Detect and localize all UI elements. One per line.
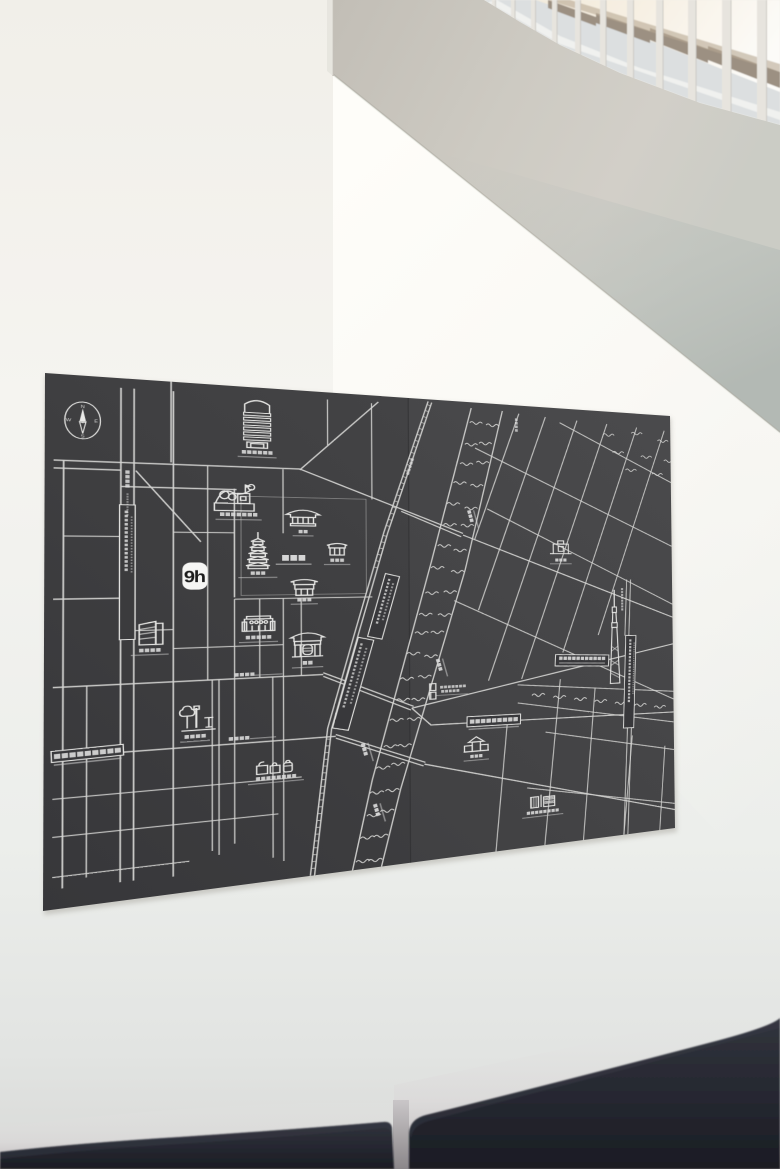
svg-text:S: S (81, 434, 85, 439)
svg-text:W: W (66, 418, 72, 423)
svg-text:E: E (94, 419, 98, 424)
svg-text:N: N (81, 405, 85, 410)
svg-text:9h: 9h (184, 568, 206, 586)
